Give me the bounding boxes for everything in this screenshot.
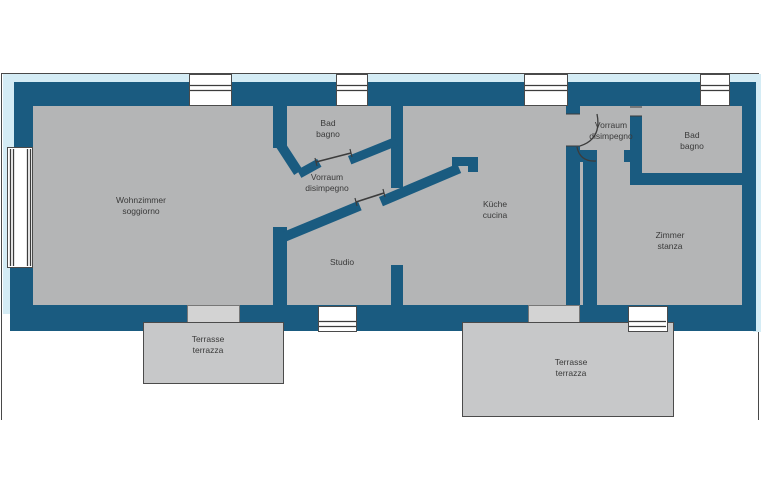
room-label-wohnzimmer: Wohnzimmersoggiorno (116, 195, 166, 218)
wall-outer-left-upper (14, 82, 33, 148)
window-top-kueche (524, 74, 568, 106)
wall-vorraum-south-left (578, 150, 597, 162)
door-kueche-terrace (528, 305, 580, 322)
room-label-zimmer: Zimmerstanza (656, 230, 685, 253)
window-left-wohnzimmer (7, 147, 33, 268)
room-label-kueche: Küchecucina (483, 199, 508, 222)
door-wohnzimmer-terrace (187, 305, 240, 322)
room-label-vorraum-left: Vorraumdisimpegno (305, 172, 348, 195)
wall-vorraum-south-right (624, 150, 642, 162)
window-bottom-studio (318, 306, 357, 332)
wall-kueche-east-top (566, 106, 580, 114)
wall-outer-right (742, 82, 756, 331)
room-label-terrasse-right: Terrasseterrazza (555, 357, 588, 380)
wall-outer-top (14, 82, 756, 106)
window-top-bad-right (700, 74, 730, 106)
wall-corridor-end-cap (468, 157, 478, 172)
wall-kueche-east-main (566, 146, 580, 331)
room-label-bad-left: Badbagno (316, 118, 340, 141)
room-label-terrasse-left: Terrasseterrazza (192, 334, 225, 357)
room-label-bad-right: Badbagno (680, 130, 704, 153)
room-label-studio: Studio (330, 257, 354, 268)
window-top-wohnzimmer (189, 74, 232, 106)
wall-bad-right-south (642, 173, 742, 185)
floorplan-image: Wohnzimmersoggiorno Badbagno Vorraumdisi… (0, 0, 764, 492)
window-top-bad-left (336, 74, 368, 106)
wall-zimmer-west (583, 162, 597, 305)
room-label-vorraum-right: Vorraumdisimpegno (589, 120, 632, 143)
window-bottom-zimmer (628, 306, 668, 332)
wall-kueche-west-lower (391, 265, 403, 331)
